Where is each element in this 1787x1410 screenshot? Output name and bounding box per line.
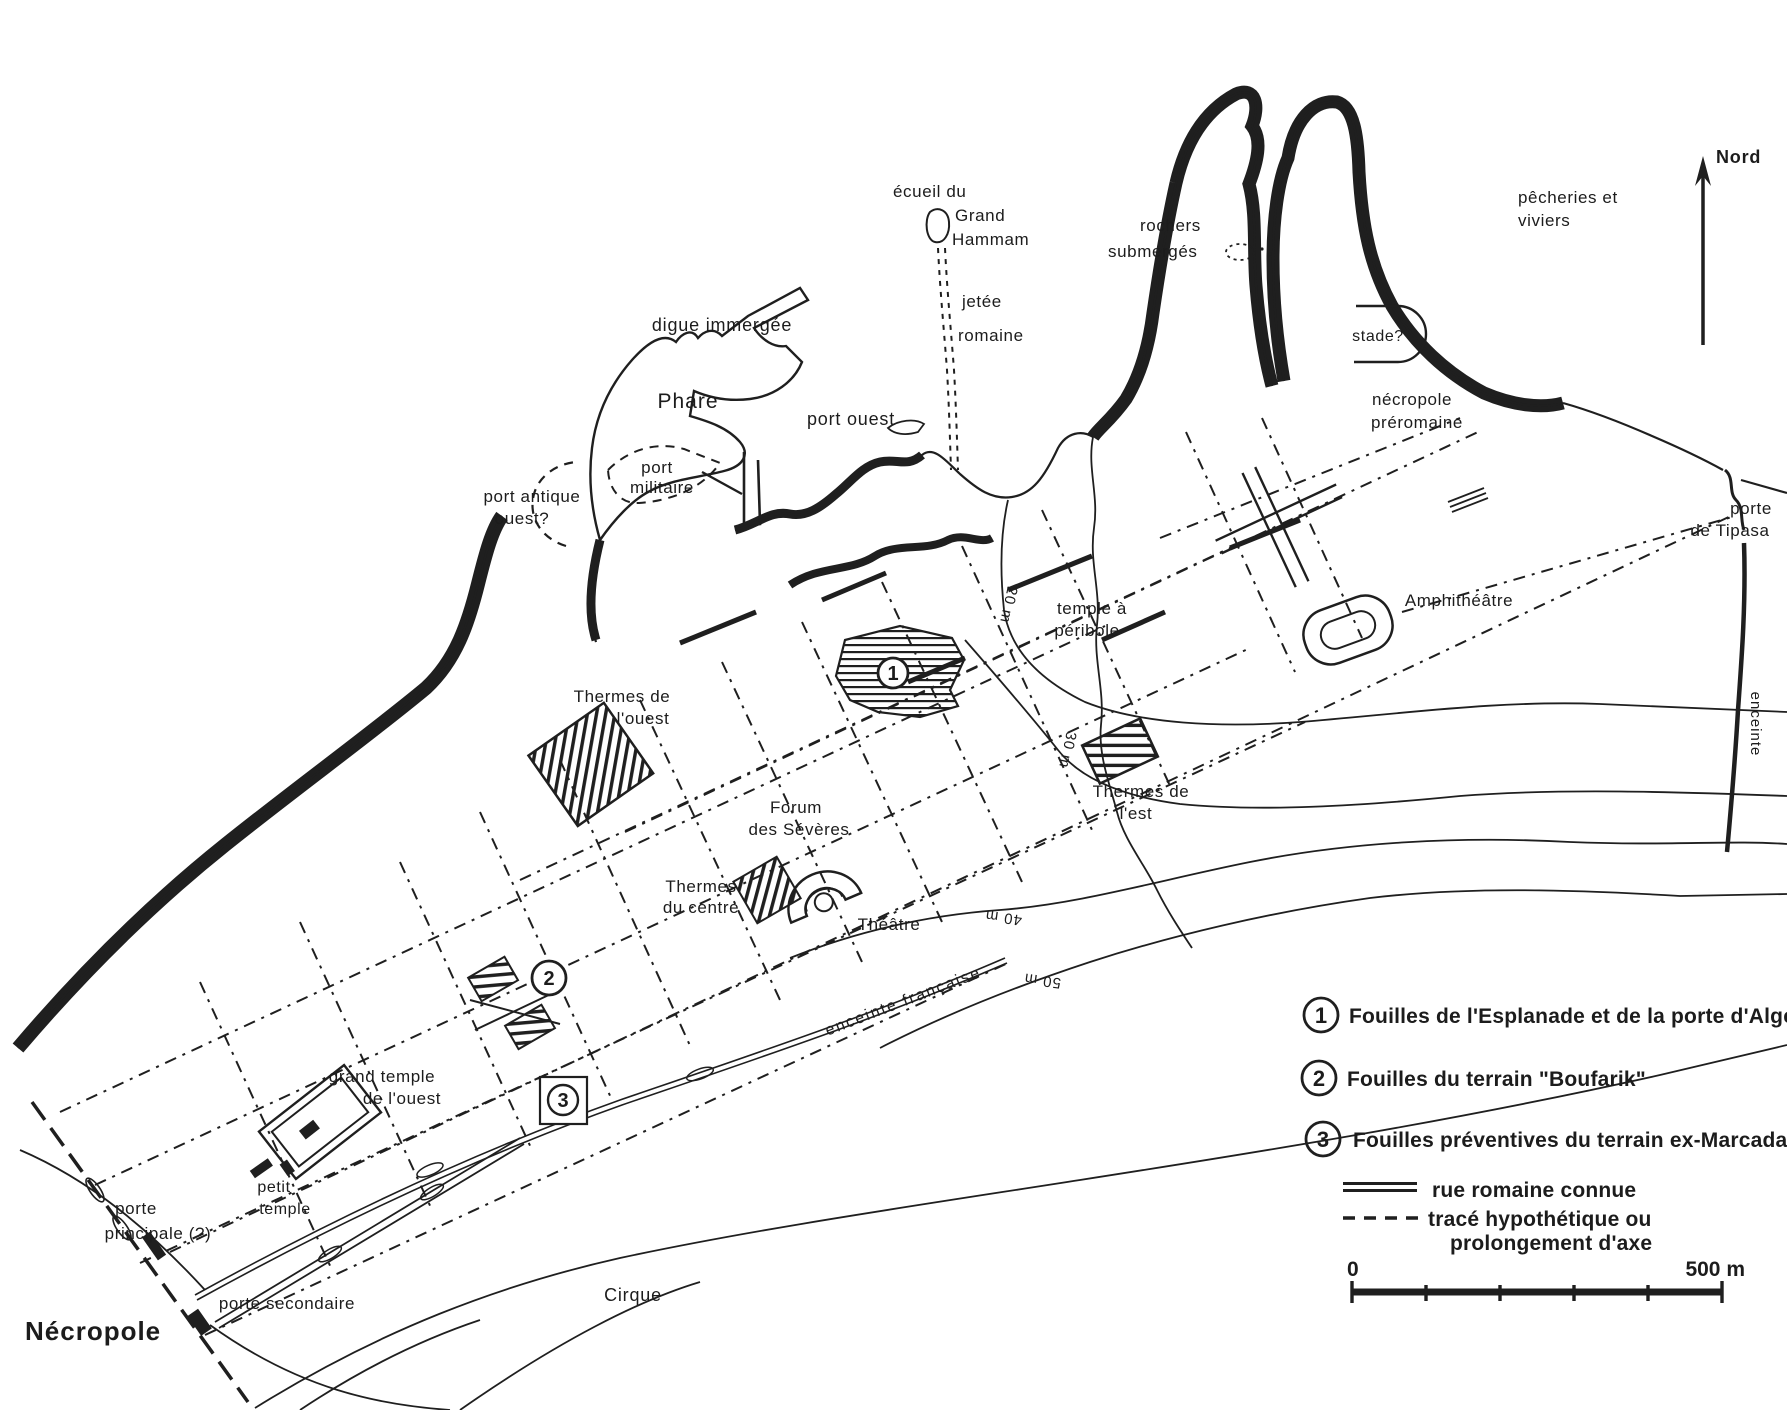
label-porte-tipasa-1: porte — [1730, 499, 1772, 518]
label-enceinte-est: enceinte — [1747, 692, 1764, 757]
legend-3-text: Fouilles préventives du terrain ex-Marca… — [1353, 1129, 1787, 1152]
north-arrow: Nord — [1695, 147, 1761, 345]
label-theatre: Théâtre — [858, 915, 921, 934]
label-porte-secondaire: porte secondaire — [219, 1294, 355, 1313]
label-digue: digue immergée — [652, 315, 792, 335]
label-phare: Phare — [657, 390, 718, 413]
rocher-dot — [1268, 252, 1271, 255]
label-pecheries-2: viviers — [1518, 211, 1570, 230]
scale-bar: 0 500 m — [1347, 1258, 1745, 1303]
label-port-antique-1: port antique — [484, 487, 581, 506]
west-shore — [18, 516, 502, 1048]
label-port-militaire-2: militaire — [630, 478, 694, 497]
cliff-line — [790, 537, 992, 585]
thermes-est-building — [1082, 718, 1158, 783]
label-temple-peribole-1: temple à — [1057, 599, 1127, 618]
label-porte-tipasa-2: de Tipasa — [1690, 521, 1769, 540]
label-necropole: Nécropole — [25, 1316, 161, 1346]
label-stade: stade? — [1352, 328, 1404, 345]
label-forum-2: des Sévères — [748, 820, 849, 839]
legend-rue-romaine-text: rue romaine connue — [1432, 1179, 1636, 1202]
label-thermes-est-2: l'est — [1120, 804, 1153, 823]
marker-3: 3 — [557, 1090, 568, 1112]
monuments — [250, 306, 1426, 1192]
label-petit-temple-2: temple — [259, 1201, 311, 1218]
legend-trace-text-2: prolongement d'axe — [1450, 1232, 1652, 1255]
label-ecueil-2: Grand — [955, 206, 1005, 225]
label-ecueil-3: Hammam — [952, 230, 1029, 249]
east-enceinte-wall — [1727, 543, 1745, 852]
label-porte-principale-1: porte — [115, 1199, 157, 1218]
label-jetee-1: jetée — [961, 292, 1002, 311]
label-amphitheatre: Amphithéâtre — [1405, 591, 1513, 610]
necropolis-street-cross — [1194, 439, 1368, 609]
label-port-militaire-1: port — [641, 458, 673, 477]
thermes-centre-building — [733, 857, 800, 924]
contour-30m — [965, 640, 1787, 808]
marker-2: 2 — [543, 968, 554, 990]
east-coast — [1563, 403, 1787, 493]
port-ouest-quay — [702, 472, 742, 494]
label-nord: Nord — [1716, 147, 1761, 167]
label-contour-20m: 20 m — [996, 585, 1020, 625]
port-ouest-pier — [744, 452, 760, 526]
scale-start: 0 — [1347, 1258, 1359, 1281]
label-ecueil-1: écueil du — [893, 182, 966, 201]
known-roman-streets — [680, 520, 1300, 682]
label-necropole-preromaine-1: nécropole — [1372, 390, 1452, 409]
amphitheatre-building — [1296, 588, 1400, 671]
label-rochers-1: rochers — [1140, 216, 1201, 235]
west-wall — [32, 1102, 248, 1402]
jetee-romaine-line — [938, 248, 958, 470]
legend: 1 Fouilles de l'Esplanade et de la porte… — [1302, 998, 1787, 1303]
ecueil-islet — [927, 209, 950, 242]
label-porte-principale-2: principale (?) — [105, 1224, 212, 1243]
label-necropole-preromaine-2: préromaine — [1371, 413, 1463, 432]
scale-end: 500 m — [1685, 1258, 1745, 1281]
legend-rue-romaine-symbol — [1343, 1182, 1417, 1192]
enceinte-bastion — [685, 1065, 715, 1084]
legend-1-num: 1 — [1315, 1003, 1327, 1028]
coastline — [18, 92, 1787, 1048]
contour-lines — [790, 500, 1787, 1048]
label-thermes-ouest-2: l'ouest — [617, 709, 670, 728]
archaeological-site-plan: 1 2 3 Nord pêcheries et viviers écueil d… — [0, 0, 1787, 1410]
legend-trace-text-1: tracé hypothétique ou — [1428, 1208, 1652, 1231]
marker-1: 1 — [887, 663, 898, 685]
label-grand-temple-1: grand temple — [329, 1067, 435, 1086]
label-contour-40m: 40 m — [984, 906, 1023, 928]
legend-2-num: 2 — [1313, 1066, 1325, 1091]
ne-peninsula-stipple — [1093, 92, 1563, 437]
label-port-ouest: port ouest — [807, 409, 895, 429]
label-thermes-centre-2: du centre — [663, 898, 739, 917]
river — [1091, 437, 1192, 948]
label-pecheries-1: pêcheries et — [1518, 188, 1618, 207]
legend-3-num: 3 — [1317, 1127, 1329, 1152]
striped-street-segment — [1448, 488, 1488, 512]
label-rochers-2: submergés — [1108, 242, 1198, 261]
label-enceinte-francaise: enceinte française — [823, 964, 984, 1039]
label-thermes-ouest-1: Thermes de — [574, 687, 671, 706]
label-jetee-2: romaine — [958, 326, 1024, 345]
label-temple-peribole-2: péribole — [1054, 621, 1119, 640]
legend-1-text: Fouilles de l'Esplanade et de la porte d… — [1349, 1005, 1787, 1028]
label-petit-temple-1: petit — [257, 1179, 290, 1196]
cliff-hachures — [790, 537, 992, 585]
scanned-archaeological-map-page: 1 2 3 Nord pêcheries et viviers écueil d… — [0, 0, 1787, 1410]
label-cirque: Cirque — [604, 1285, 662, 1305]
label-grand-temple-2: de l'ouest — [363, 1089, 441, 1108]
label-port-antique-2: ouest? — [495, 509, 550, 528]
label-forum-1: Forum — [770, 798, 822, 817]
label-thermes-centre-1: Thermes — [665, 877, 736, 896]
legend-2-text: Fouilles du terrain "Boufarik" — [1347, 1068, 1646, 1091]
rocher-dot — [1260, 247, 1263, 250]
contour-40m — [790, 840, 1787, 958]
label-thermes-est-1: Thermes de — [1093, 782, 1190, 801]
